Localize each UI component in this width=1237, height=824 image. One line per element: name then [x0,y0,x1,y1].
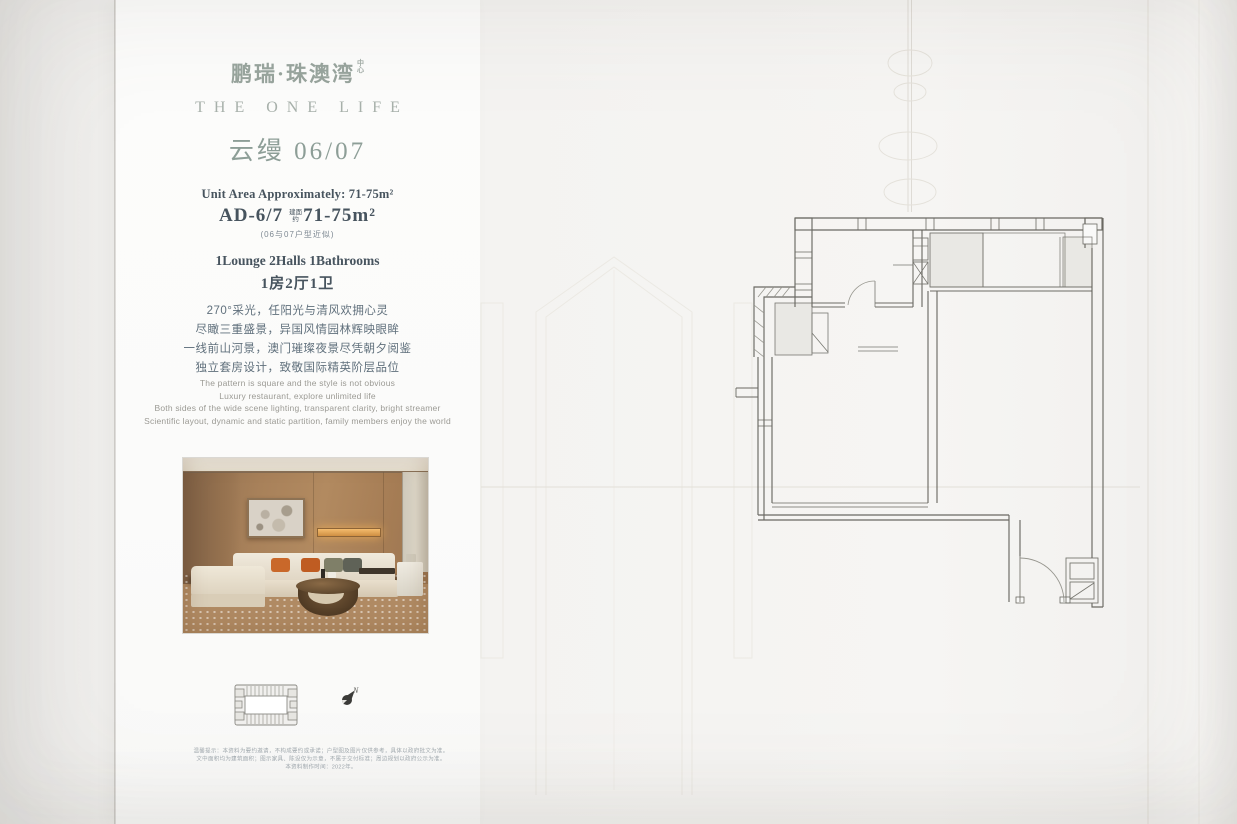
floor-plan-walls [736,218,1103,607]
description-en-line: Scientific layout, dynamic and static pa… [115,415,480,428]
bay-furniture [775,303,828,355]
disclaimer-line: 文中面积均为建筑面积；图示家具、陈设仅为示意，不属于交付标准；周边规划以政府公示… [189,756,454,763]
unit-layout-en: 1Lounge 2Halls 1Bathrooms [115,253,480,269]
description-cn-line: 尽瞰三重盛景，异国风情园林辉映眼眸 [115,321,480,340]
ghost-arch-inner [546,267,682,795]
entry-closet [1066,558,1098,603]
unit-area-note: (06与07户型近似) [115,229,480,240]
pipe-shaft-x [913,262,928,284]
floor-plan-shaded-rooms [775,233,1092,355]
description-cn-line: 270°采光，任阳光与清风欢拥心灵 [115,302,480,321]
description-cn-line: 一线前山河景，澳门璀璨夜景尽凭朝夕阅鉴 [115,340,480,359]
disclaimer: 温馨提示：本资料为要约邀请，不构成要约或承诺；户型图及图片仅供参考，具体以政府批… [177,748,465,772]
bathroom [930,233,983,287]
description-en-line: The pattern is square and the style is n… [115,377,480,390]
unit-specs: Unit Area Approximately: 71-75m² AD-6/7建… [115,187,480,293]
unit-area-prefix: 建面约 [289,209,302,223]
entry-door-arc [1020,558,1064,602]
ghost-pendant-ellipse [894,83,926,101]
ghost-pendant-ellipse [879,132,937,160]
unit-layout-cn: 1房2厅1卫 [115,272,480,293]
brand-logo-suffix: 中心 [357,60,364,74]
description-cn: 270°采光，任阳光与清风欢拥心灵 尽瞰三重盛景，异国风情园林辉映眼眸 一线前山… [115,302,480,378]
kitchen [983,233,1065,287]
ghost-pendant-ellipse [884,179,936,205]
brand-logo-text: 鹏瑞·珠澳湾 [231,62,355,86]
brand-logo-en: THE ONE LIFE [115,99,480,117]
ghost-pilaster-left [481,303,503,658]
floor-plan [735,205,1115,615]
description-en-line: Luxury restaurant, explore unlimited lif… [115,390,480,403]
ghost-arch-outline [536,257,692,795]
ghost-pendant-line [908,0,912,212]
unit-title: 云缦 06/07 [115,131,480,167]
brand-logo: 鹏瑞·珠澳湾中心 [115,58,480,88]
unit-area-en: Unit Area Approximately: 71-75m² [115,187,480,202]
living-room-photo [183,458,428,633]
ghost-printthrough-art [478,0,1237,824]
key-plan [231,681,301,729]
unit-code: AD-6/7 [219,205,283,226]
pipe-shaft [913,238,928,260]
brochure-photo: { "page": { "background_color": "#f4f3f1… [0,0,1237,824]
description-en-line: Both sides of the wide scene lighting, t… [115,402,480,415]
photo-vignette [183,458,428,633]
floor-plan-interior [775,230,1098,603]
compass-label: N [352,686,359,695]
tv-bench [858,347,898,351]
description-cn-line: 独立套房设计，致敬国际精英阶层品位 [115,359,480,378]
ghost-pilaster-right [734,303,752,658]
disclaimer-line: 本资料制作时间：2022年。 [189,764,454,771]
unit-area-main: AD-6/7建面约71-75m² [115,205,480,227]
compass-icon: N [335,684,363,712]
bedroom-door-arc [848,281,875,305]
brochure-panel: 鹏瑞·珠澳湾中心 THE ONE LIFE 云缦 06/07 Unit Area… [115,0,480,824]
disclaimer-line: 温馨提示：本资料为要约邀请，不构成要约或承诺；户型图及图片仅供参考，具体以政府批… [189,748,454,755]
ghost-pendant-ellipse [888,50,932,76]
description-en: The pattern is square and the style is n… [115,377,480,427]
brand-block: 鹏瑞·珠澳湾中心 THE ONE LIFE 云缦 06/07 [115,58,480,167]
unit-area-value: 71-75m² [303,205,376,226]
